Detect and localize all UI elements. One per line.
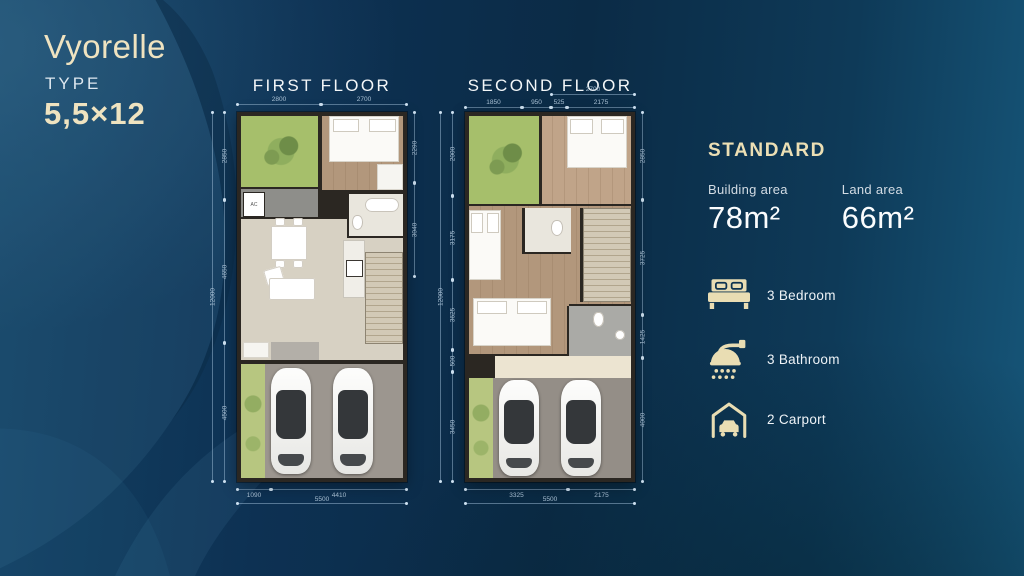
dimension-line: 2700 [321,104,407,105]
dimension-label: 3625 [450,308,457,322]
dimension-line: 12000 [440,112,441,482]
wall [318,116,322,217]
dimension-label: 2175 [594,99,608,106]
dimension-line: 5500 [465,503,635,504]
bedroom-amenity-row: 3 Bedroom [708,274,836,316]
dimension-line: 5500 [237,503,407,504]
dimension-line: 4650 [224,200,225,343]
wall [522,208,525,252]
dimension-label: 950 [531,99,542,106]
dimension-label: 2850 [640,149,647,163]
bed-icon [708,274,750,316]
first-floor-plan: AC [237,112,407,482]
dimension-line: 12000 [212,112,213,482]
bathroom [525,208,571,252]
carport-below-view [469,378,631,478]
wall [539,116,542,204]
dimension-line: 1090 [237,489,271,490]
ac-unit: AC [243,192,265,217]
dining-table [271,226,307,260]
dimension-label: 1090 [247,492,261,499]
dimension-line: 2175 [567,107,635,108]
wall [522,252,571,254]
bed [329,116,399,162]
dimension-line: 2000 [452,112,453,196]
wardrobe [377,164,403,190]
stairs [583,208,631,302]
dimension-label: 2000 [450,147,457,161]
dimension-label: 1425 [640,329,647,343]
chair [293,218,303,226]
wall [580,208,583,302]
toilet [551,220,563,236]
bathroom-amenity-label: 3 Bathroom [767,352,840,367]
dimension-line: 500 [452,350,453,372]
wall [469,204,631,206]
carport-area [241,364,403,478]
bed [567,116,627,168]
dimension-label: 2800 [272,96,286,103]
land-area-label: Land area [842,182,915,197]
chair [275,218,285,226]
dimension-line: 3625 [452,280,453,350]
dimension-label: 4500 [222,405,229,419]
dimension-line: 2850 [642,112,643,200]
dimension-line: 2290 [414,112,415,183]
building-area-stat: Building area 78m² [708,182,788,236]
stove [346,260,363,277]
roof-garden-area [469,116,539,204]
bedroom-amenity-label: 3 Bedroom [767,288,836,303]
garden-area [241,116,318,187]
type-label: TYPE [45,74,101,94]
stairs [365,252,403,344]
dimension-line: 2700 [551,94,635,95]
carport-amenity-label: 2 Carport [767,412,826,427]
dimension-line: 3175 [452,196,453,280]
car [561,380,601,476]
car [271,368,311,474]
dimension-line: 525 [551,107,567,108]
dimension-label: 2290 [412,140,419,154]
dimension-label: 4650 [222,264,229,278]
balcony [493,356,631,380]
dimension-line: 1425 [642,315,643,358]
sink [615,330,625,340]
car [499,380,539,476]
dimension-line: 2800 [237,104,321,105]
wall [469,354,495,378]
carport-amenity-row: 2 Carport [708,398,826,440]
dimension-line: 2850 [224,112,225,200]
toilet [352,215,363,230]
wall [347,194,349,238]
side-garden-strip [241,364,265,478]
side-garden-strip [469,378,493,478]
dimension-label: 2700 [586,86,600,93]
land-area-stat: Land area 66m² [842,182,915,236]
dimension-line: 3040 [414,183,415,277]
dimension-label: 1850 [486,99,500,106]
dimension-line: 3450 [452,372,453,482]
shower-icon [708,338,750,380]
toilet [593,312,604,327]
dimension-label: 12000 [438,288,445,306]
building-area-value: 78m² [708,200,788,236]
brand-logo: Vyorelle [44,28,166,66]
dimension-label: 3450 [450,420,457,434]
wall [347,236,403,238]
brochure-slide: Vyorelle TYPE 5,5×12 FIRST FLOOR SECOND … [0,0,1024,576]
wall [569,304,631,306]
dimension-label: 3325 [509,492,523,499]
dimension-line: 4000 [642,358,643,482]
dimension-label: 3725 [640,250,647,264]
wall [322,190,403,193]
dimension-label: 3040 [412,223,419,237]
dimension-line: 4410 [271,489,407,490]
second-floor-plan [465,112,635,482]
dimension-label: 12000 [210,288,217,306]
dimension-label: 2850 [222,149,229,163]
bathroom-amenity-row: 3 Bathroom [708,338,840,380]
ac-unit-label: AC [251,202,258,208]
bed [469,210,501,280]
dimension-line: 3725 [642,200,643,315]
wall [567,306,569,356]
dimension-line: 1850 [465,107,522,108]
dimension-line: 950 [522,107,551,108]
dimension-label: 500 [450,356,457,367]
dimension-label: 2175 [594,492,608,499]
dimension-label: 4410 [332,492,346,499]
chair [293,260,303,268]
land-area-value: 66m² [842,200,915,236]
master-bed [473,298,551,346]
dimension-label: 5500 [543,496,557,503]
dimension-line: 2175 [568,489,635,490]
carport-icon [708,398,750,440]
car [333,368,373,474]
entry-door [243,342,269,358]
dimension-line: 4500 [224,343,225,482]
sofa [269,278,315,300]
bathtub [365,198,399,212]
area-stats: Building area 78m² Land area 66m² [708,182,914,236]
porch [271,342,319,360]
dimension-label: 4000 [640,413,647,427]
dimension-label: 3175 [450,231,457,245]
spec-heading: STANDARD [708,140,826,162]
dimension-label: 5500 [315,496,329,503]
first-floor-title: FIRST FLOOR [237,76,407,96]
dimension-label: 2700 [357,96,371,103]
dimension-label: 525 [554,99,565,106]
dimension-line: 3325 [465,489,568,490]
type-value: 5,5×12 [44,96,146,132]
building-area-label: Building area [708,182,788,197]
